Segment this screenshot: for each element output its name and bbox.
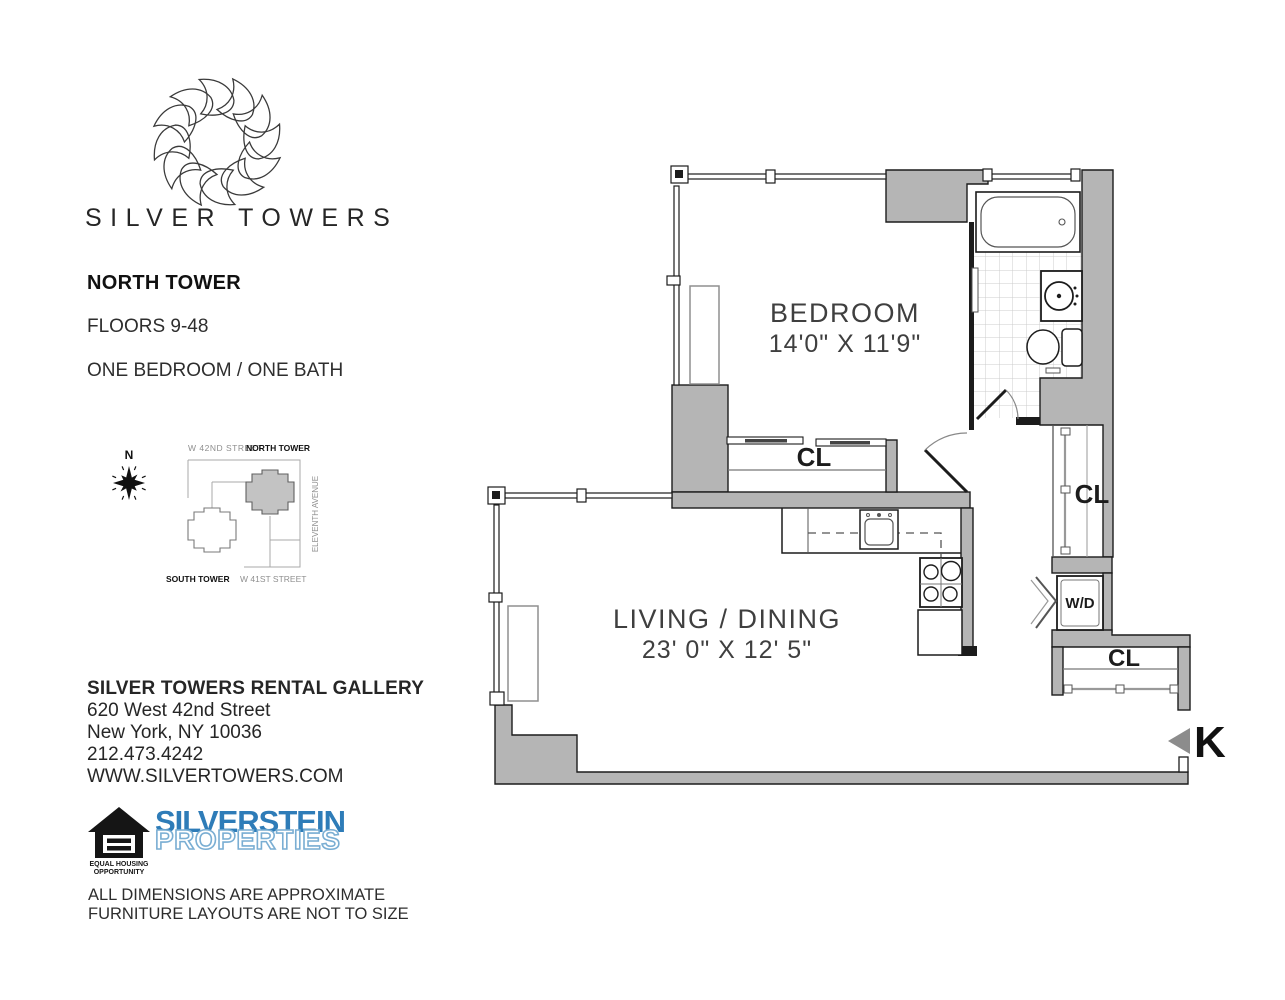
bathroom-shelf — [972, 268, 978, 312]
brand-name: SILVER TOWERS — [85, 204, 398, 233]
compass-north-label: N — [125, 448, 134, 462]
bedroom-closet-label: CL — [797, 442, 832, 472]
south-tower-label: SOUTH TOWER — [166, 574, 230, 584]
bathtub — [976, 192, 1080, 252]
silver-towers-logo — [148, 76, 286, 208]
disclaimer-line1: ALL DIMENSIONS ARE APPROXIMATE — [88, 886, 409, 905]
contact-block: SILVER TOWERS RENTAL GALLERY 620 West 42… — [87, 678, 424, 788]
living-dining-dimensions: 23' 0" X 12' 5" — [642, 636, 812, 664]
compass-rose-icon: N — [106, 446, 152, 506]
bedroom-label: BEDROOM — [770, 298, 920, 328]
logo-petal — [228, 87, 281, 142]
kitchen-cabinet — [918, 610, 962, 655]
logo-petal — [162, 78, 217, 131]
entry-closet-label: CL — [1108, 645, 1140, 672]
floors-line: FLOORS 9-48 — [87, 316, 208, 338]
floorplan-sheet: SILVER TOWERS NORTH TOWER FLOORS 9-48 ON… — [0, 0, 1285, 1000]
living-dining-label: LIVING / DINING — [613, 604, 841, 634]
north-tower-label: NORTH TOWER — [246, 443, 310, 453]
walls — [495, 170, 1190, 784]
properties-wordmark: PROPERTIES — [155, 826, 345, 854]
washer-dryer-label: W/D — [1065, 595, 1094, 612]
street-41-label: W 41ST STREET — [240, 574, 306, 584]
hall-closet-label: CL — [1075, 479, 1110, 509]
logo-petal — [217, 153, 272, 206]
equal-housing-line1: EQUAL HOUSING — [90, 861, 150, 868]
floor-plan-drawing: K BEDROOM 14'0" X 11'9" LIVING / DINING … — [475, 155, 1235, 815]
tower-title: NORTH TOWER — [87, 272, 241, 295]
stove — [920, 558, 962, 607]
disclaimer: ALL DIMENSIONS ARE APPROXIMATE FURNITURE… — [88, 886, 409, 924]
entry-closet — [1063, 669, 1178, 693]
gallery-name: SILVER TOWERS RENTAL GALLERY — [87, 678, 424, 700]
layout-line: ONE BEDROOM / ONE BATH — [87, 360, 343, 382]
kitchen-sink — [860, 510, 898, 549]
north-tower-footprint — [246, 470, 294, 514]
silverstein-properties-logo: SILVERSTEIN PROPERTIES — [155, 806, 345, 854]
website-url: WWW.SILVERTOWERS.COM — [87, 766, 424, 788]
disclaimer-line2: FURNITURE LAYOUTS ARE NOT TO SIZE — [88, 905, 409, 924]
eleventh-avenue-label: ELEVENTH AVENUE — [311, 476, 320, 552]
site-key-map: W 42ND STREET NORTH TOWER ELEVENTH AVENU… — [148, 438, 328, 590]
sink-vanity — [1041, 271, 1082, 321]
address-street: 620 West 42nd Street — [87, 700, 424, 722]
living-furniture — [508, 606, 538, 701]
spirograph-icon — [148, 76, 286, 208]
south-tower-footprint — [188, 508, 236, 552]
equal-housing-opportunity-icon: EQUAL HOUSING OPPORTUNITY — [86, 806, 152, 876]
unit-line-marker: K — [1194, 718, 1226, 767]
bedroom-dimensions: 14'0" X 11'9" — [769, 330, 921, 358]
logo-petal — [153, 142, 206, 197]
window-corner-marks — [492, 170, 683, 499]
address-city: New York, NY 10036 — [87, 722, 424, 744]
entry-arrow-icon — [1168, 728, 1190, 754]
phone-number: 212.473.4242 — [87, 744, 424, 766]
bedroom-furniture — [690, 286, 719, 384]
entry-door-jamb — [1179, 757, 1188, 772]
equal-housing-line2: OPPORTUNITY — [94, 869, 145, 876]
bedroom-door — [925, 433, 967, 492]
